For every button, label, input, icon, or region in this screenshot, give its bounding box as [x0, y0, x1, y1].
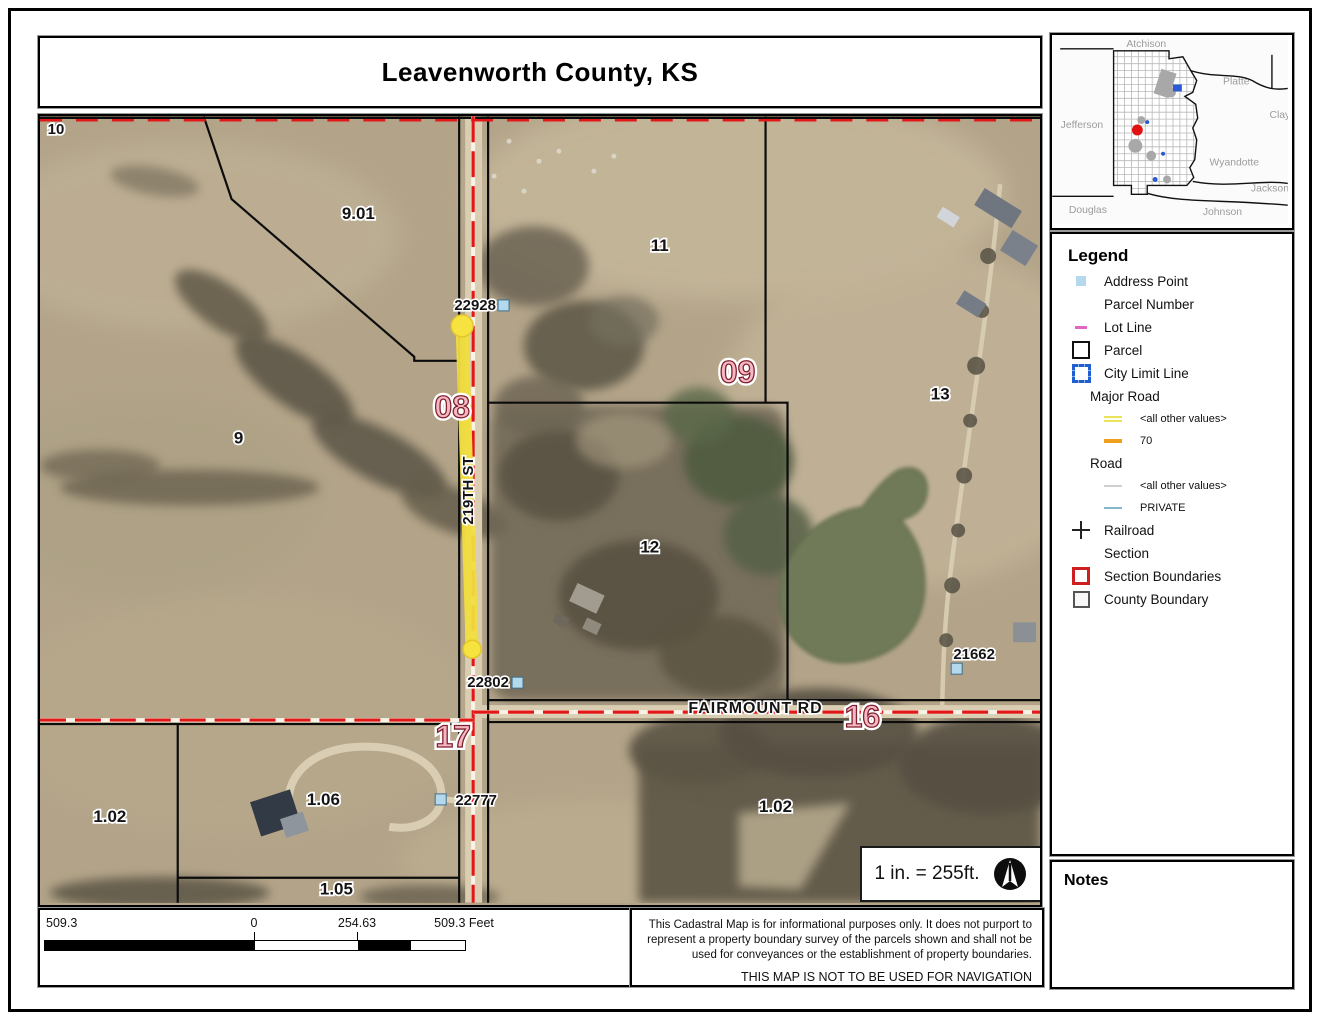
- scalebar-panel: 509.3 0 254.63 509.3 Feet: [38, 908, 632, 987]
- legend-item-section-boundaries: Section Boundaries: [1052, 565, 1292, 587]
- major-road-70-icon: [1104, 439, 1122, 443]
- section-label-17: 17: [435, 718, 471, 754]
- parcel-label-1-05: 1.05: [320, 880, 353, 899]
- address-point-icon: [1076, 276, 1086, 286]
- legend-item-county-boundary: County Boundary: [1052, 588, 1292, 610]
- address-label-21662: 21662: [953, 646, 995, 663]
- disclaimer-panel: This Cadastral Map is for informational …: [630, 908, 1044, 987]
- lot-line-icon: [1075, 326, 1087, 329]
- scalebar: [44, 940, 466, 951]
- scale-note-text: 1 in. = 255ft.: [874, 863, 979, 885]
- scalebar-tick: [254, 932, 255, 940]
- parcel-label-9: 9: [234, 429, 243, 448]
- address-point-22802[interactable]: [512, 677, 523, 688]
- legend-item-major-road-70: 70: [1052, 430, 1292, 451]
- notes-panel: Notes: [1050, 860, 1294, 989]
- legend-item-major-road-other: <all other values>: [1052, 408, 1292, 429]
- notes-heading: Notes: [1064, 872, 1292, 890]
- county-label-jefferson: Jefferson: [1061, 120, 1104, 131]
- cadastral-map-page: Leavenworth County, KS: [0, 0, 1320, 1020]
- scalebar-label-mid: 254.63: [338, 916, 376, 930]
- legend-panel: Legend Address Point Parcel Number Lot L…: [1050, 232, 1294, 856]
- legend-item-railroad: Railroad: [1052, 519, 1292, 541]
- address-label-22928: 22928: [454, 297, 496, 314]
- county-label-wyandotte: Wyandotte: [1210, 158, 1260, 169]
- section-label-09: 09: [720, 354, 756, 390]
- page-title: Leavenworth County, KS: [382, 57, 699, 88]
- legend-group-major-road: Major Road: [1052, 385, 1292, 407]
- parcel-label-1-02-east: 1.02: [759, 797, 792, 816]
- legend-heading: Legend: [1068, 246, 1292, 266]
- county-locator-inset[interactable]: Atchison Platte Jefferson Clay Wyandotte…: [1050, 33, 1294, 230]
- scalebar-label-right: 509.3 Feet: [434, 916, 494, 930]
- railroad-icon: [1072, 521, 1090, 539]
- parcel-label-13: 13: [931, 385, 950, 404]
- county-label-douglas: Douglas: [1069, 205, 1107, 216]
- scalebar-tick: [357, 932, 358, 940]
- city-limit-line-icon: [1072, 364, 1091, 383]
- road-label-219th-st: 219TH ST: [460, 456, 477, 524]
- aerial-imagery: [40, 116, 1040, 903]
- legend-item-section: Section: [1052, 542, 1292, 564]
- parcel-label-10: 10: [48, 121, 65, 138]
- county-label-jackson: Jackson: [1251, 183, 1288, 194]
- locator-map: Atchison Platte Jefferson Clay Wyandotte…: [1052, 35, 1288, 224]
- scalebar-label-zero: 0: [251, 916, 258, 930]
- scalebar-segment: [45, 941, 255, 950]
- road-label-fairmount-rd: FAIRMOUNT RD: [688, 700, 822, 717]
- county-boundary-icon: [1073, 591, 1090, 608]
- road-other-icon: [1104, 485, 1122, 487]
- parcel-label-9-01: 9.01: [342, 204, 375, 223]
- county-label-platte: Platte: [1223, 76, 1250, 87]
- county-label-johnson: Johnson: [1203, 207, 1242, 218]
- parcel-label-1-02-west: 1.02: [93, 807, 126, 826]
- disclaimer-warning: THIS MAP IS NOT TO BE USED FOR NAVIGATIO…: [646, 970, 1032, 984]
- address-point-21662[interactable]: [951, 663, 962, 674]
- section-label-08: 08: [434, 389, 470, 425]
- title-bar: Leavenworth County, KS: [38, 36, 1042, 108]
- section-boundaries-icon: [1072, 567, 1090, 585]
- north-arrow-icon: [992, 856, 1028, 892]
- map-viewport[interactable]: 10 9.01 9 11 13 12 1.02 1.06 1.05 1.02 2…: [38, 114, 1042, 907]
- map-canvas[interactable]: 10 9.01 9 11 13 12 1.02 1.06 1.05 1.02 2…: [40, 116, 1040, 903]
- legend-item-address-point: Address Point: [1052, 270, 1292, 292]
- address-label-22802: 22802: [467, 674, 509, 691]
- road-private-icon: [1104, 507, 1122, 509]
- parcel-label-11: 11: [651, 236, 669, 255]
- section-label-16: 16: [845, 698, 881, 734]
- legend-item-parcel-number: Parcel Number: [1052, 293, 1292, 315]
- legend-item-city-limit-line: City Limit Line: [1052, 362, 1292, 384]
- scalebar-label-left: 509.3: [46, 916, 77, 930]
- major-road-other-icon: [1104, 416, 1122, 422]
- legend-item-road-other: <all other values>: [1052, 475, 1292, 496]
- legend-item-parcel: Parcel: [1052, 339, 1292, 361]
- disclaimer-text: This Cadastral Map is for informational …: [646, 918, 1032, 963]
- county-label-clay: Clay: [1269, 110, 1288, 121]
- county-label-atchison: Atchison: [1126, 39, 1166, 50]
- address-point-22777[interactable]: [435, 794, 446, 805]
- legend-item-road-private: PRIVATE: [1052, 497, 1292, 518]
- address-point-22928[interactable]: [498, 300, 509, 311]
- legend-group-road: Road: [1052, 452, 1292, 474]
- parcel-label-12: 12: [640, 537, 659, 556]
- scalebar-segment: [358, 941, 411, 950]
- parcel-label-1-06: 1.06: [307, 790, 340, 809]
- parcel-icon: [1072, 341, 1090, 359]
- locator-current-location-dot: [1132, 125, 1143, 136]
- scalebar-segment: [411, 941, 465, 950]
- legend-item-lot-line: Lot Line: [1052, 316, 1292, 338]
- address-label-22777: 22777: [455, 792, 497, 809]
- scalebar-segment: [255, 941, 358, 950]
- scale-note-box: 1 in. = 255ft.: [860, 846, 1042, 902]
